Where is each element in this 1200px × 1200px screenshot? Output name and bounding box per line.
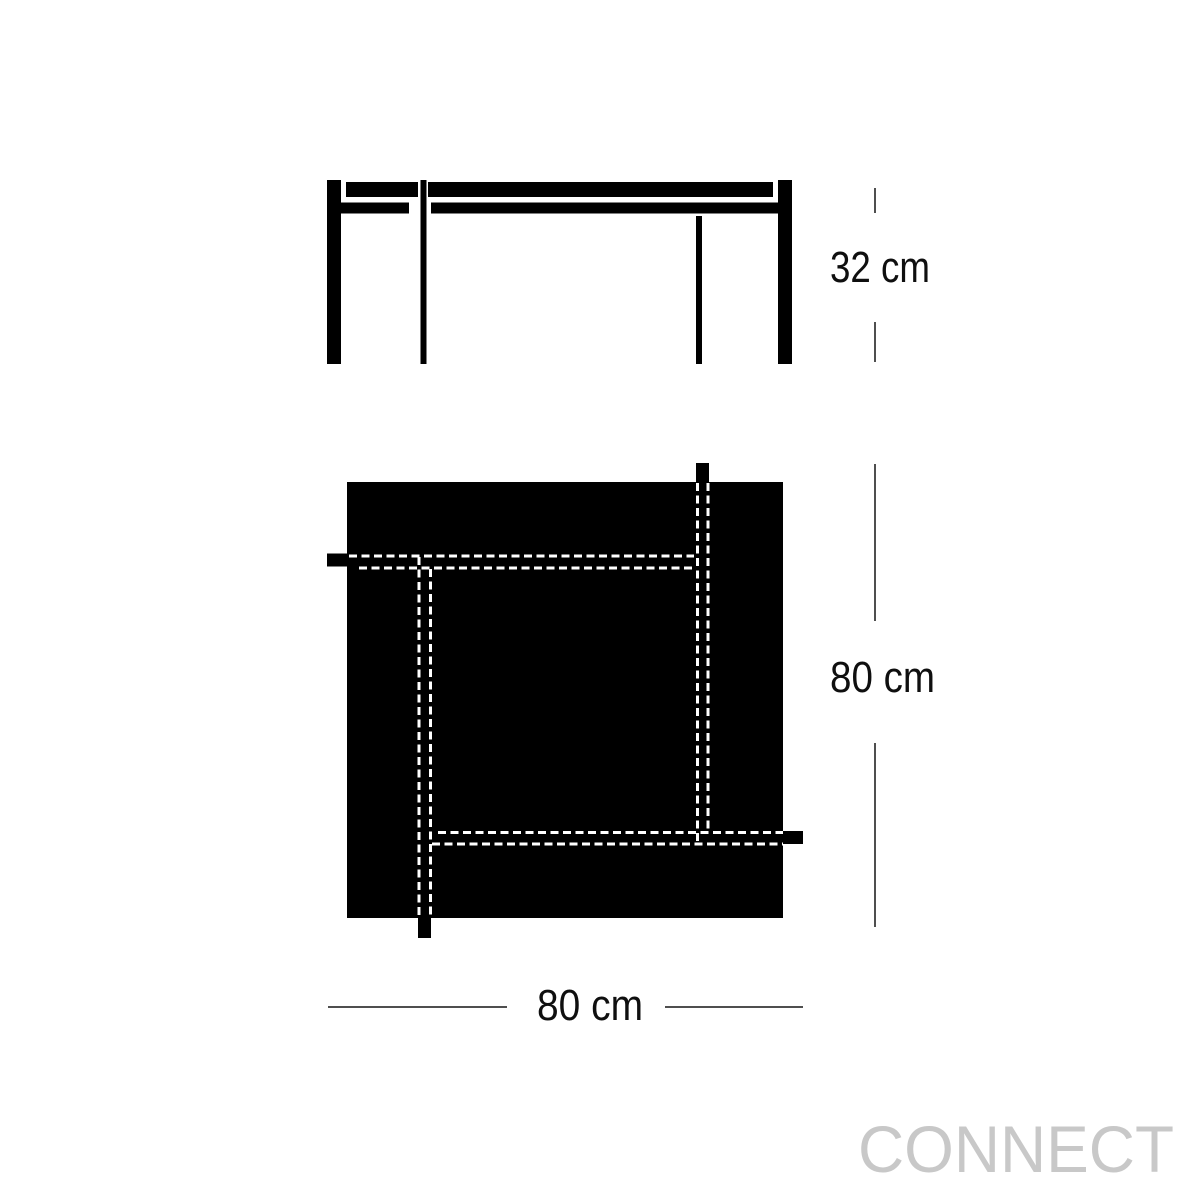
depth-dimension: 80 cm (830, 464, 935, 927)
leg-stub-bottom (418, 918, 431, 938)
leg-stub-right (783, 831, 803, 844)
side-view (327, 180, 792, 364)
watermark: CONNECT (858, 1112, 1174, 1186)
height-dimension-label: 32 cm (830, 243, 930, 292)
leg-stub-top (696, 463, 709, 483)
side-inner-left-leg (421, 180, 427, 364)
top-view (327, 463, 803, 938)
side-tabletop-right-segment (428, 182, 773, 197)
side-apron-left-segment (341, 203, 409, 214)
side-left-leg (327, 180, 341, 364)
width-dimension-label: 80 cm (537, 981, 643, 1030)
height-dimension: 32 cm (830, 188, 930, 362)
side-tabletop-left-segment (346, 182, 418, 197)
side-apron-right-segment (431, 203, 778, 214)
depth-dimension-label: 80 cm (830, 653, 935, 702)
width-dimension: 80 cm (328, 981, 803, 1030)
side-inner-right-leg (696, 216, 702, 364)
top-view-tabletop (347, 482, 783, 918)
leg-stub-left (327, 554, 347, 567)
diagram-svg: 32 cm 80 cm (0, 0, 1200, 1200)
side-right-leg (778, 180, 792, 364)
product-dimension-diagram: 32 cm 80 cm (0, 0, 1200, 1200)
